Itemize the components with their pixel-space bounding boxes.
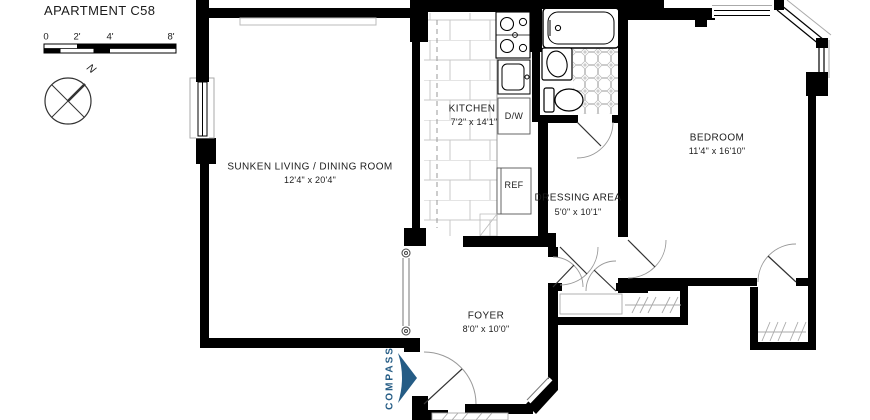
bathroom-sink [542,48,572,80]
page-title: APARTMENT C58 [44,3,155,18]
toilet [544,88,583,112]
floor-plan-page: APARTMENT C58 0 2' 4' 8' N SUNKEN LIVING… [0,0,870,420]
refrigerator-label: REF [505,180,524,190]
dressing-area-dims: 5'0" x 10'1" [555,207,602,217]
dishwasher-label: D/W [505,111,523,121]
scale-tick-0: 0 [43,32,48,43]
compass-logo-text: COMPASS [385,346,396,410]
bathtub [543,8,619,48]
foyer-label: FOYER [468,311,504,322]
kitchen-label: KITCHEN [449,104,496,115]
stove [496,12,530,58]
bedroom-dims: 11'4" x 16'10" [689,146,746,156]
dressing-area-label: DRESSING AREA [535,193,622,204]
scale-tick-4: 4' [106,32,113,43]
scale-tick-2: 2' [73,32,80,43]
kitchen-dims: 7'2" x 14'1" [451,117,498,127]
scale-bar [44,44,176,53]
bedroom-label: BEDROOM [690,133,744,144]
living-room-dims: 12'4" x 20'4" [284,175,336,185]
sunken-step-railing [402,249,410,335]
kitchen-sink [498,60,530,94]
foyer-dims: 8'0" x 10'0" [463,324,510,334]
compass-logo-pennant [398,353,417,403]
living-room-label: SUNKEN LIVING / DINING ROOM [227,162,392,173]
scale-tick-8: 8' [167,32,174,43]
floor-plan-drawing [0,0,870,420]
compass-rose [45,78,91,124]
